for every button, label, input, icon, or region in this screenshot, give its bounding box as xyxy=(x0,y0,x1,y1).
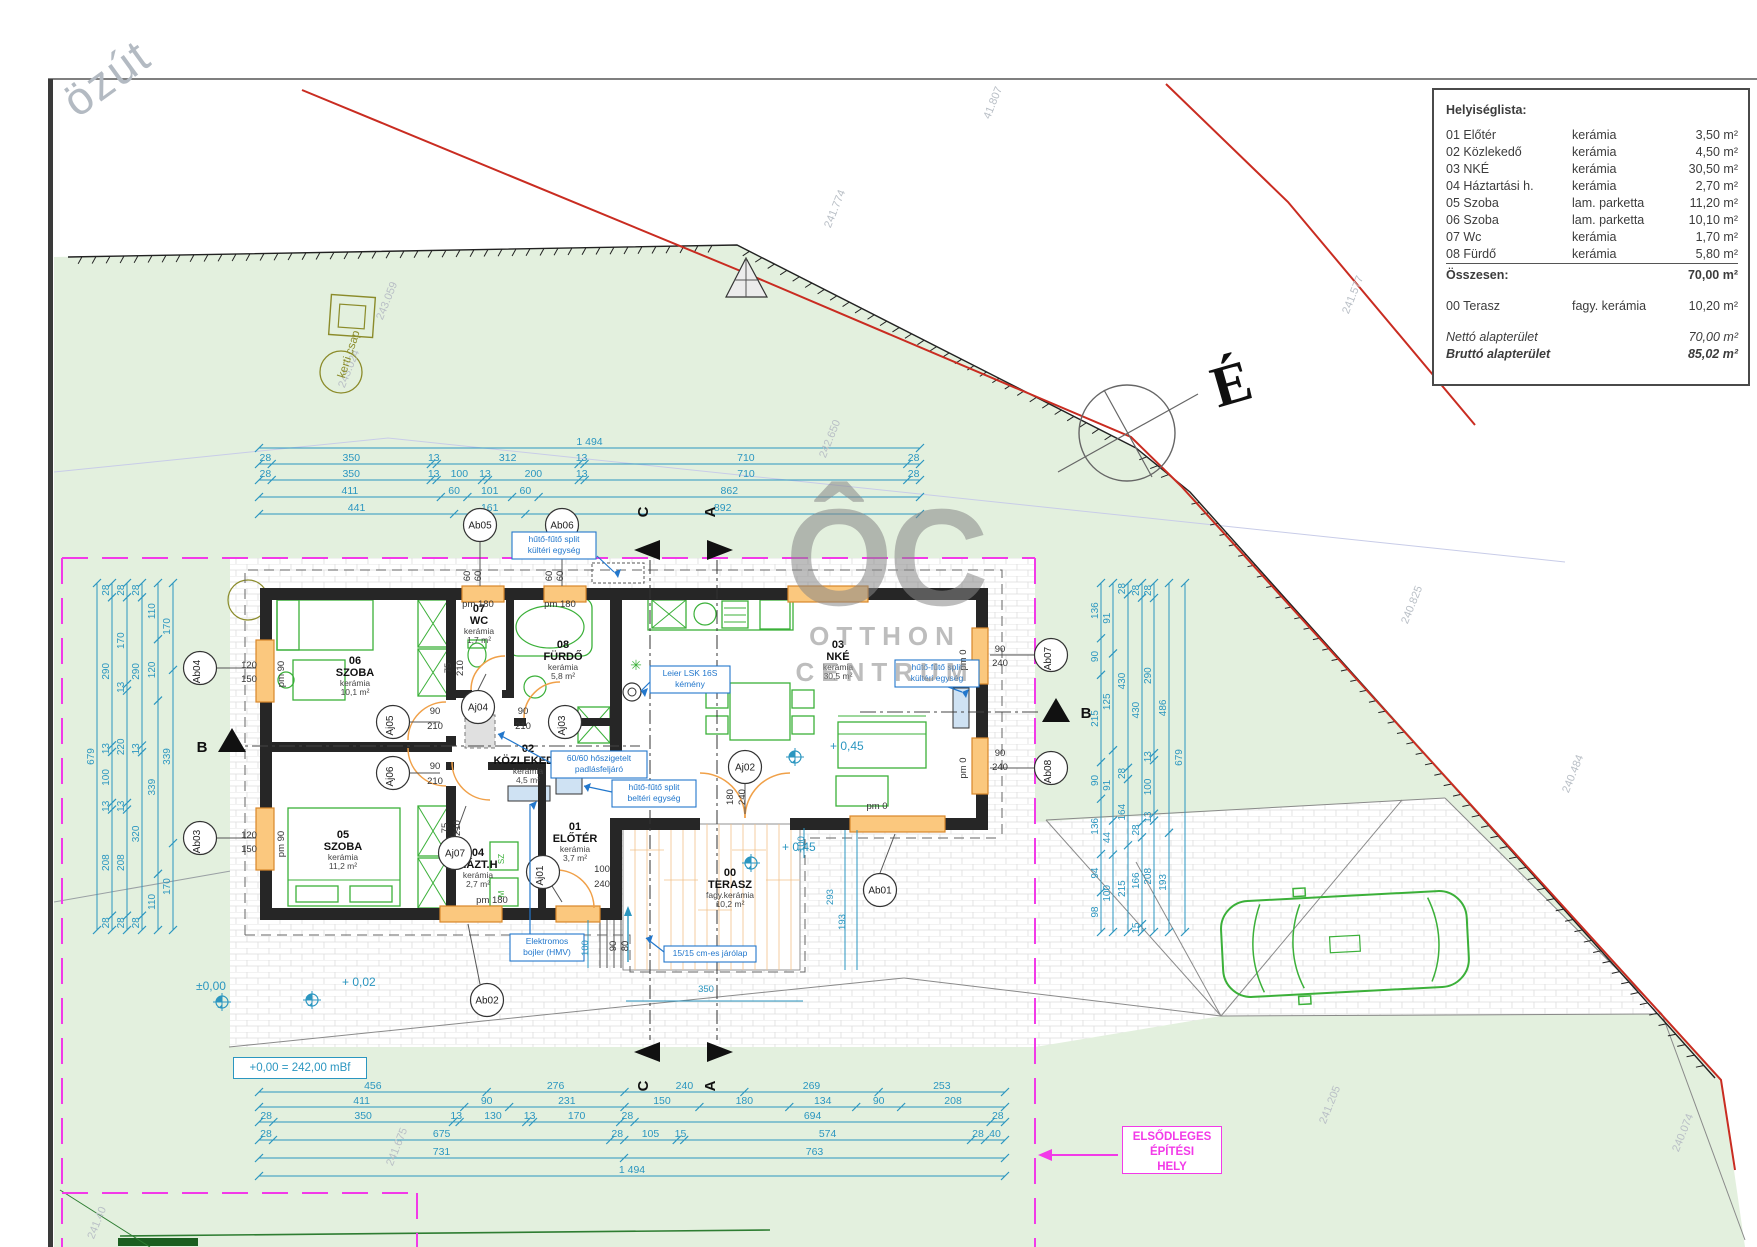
svg-text:60: 60 xyxy=(544,571,555,582)
svg-text:210: 210 xyxy=(455,660,466,676)
svg-text:+ 0,45: + 0,45 xyxy=(830,739,864,753)
svg-text:253: 253 xyxy=(933,1080,951,1092)
svg-text:90: 90 xyxy=(518,706,529,717)
room-list-row: 01 Előtérkerámia3,50 m² xyxy=(1446,127,1738,144)
svg-text:08: 08 xyxy=(557,639,569,651)
svg-text:574: 574 xyxy=(819,1128,837,1140)
total-label: Összesen: xyxy=(1446,267,1572,284)
svg-text:+ 0,02: + 0,02 xyxy=(342,975,376,989)
svg-text:170: 170 xyxy=(162,878,173,895)
total-area: 70,00 m² xyxy=(1682,267,1738,284)
svg-text:hűtő-fűtő split: hűtő-fűtő split xyxy=(528,534,580,544)
svg-text:215: 215 xyxy=(1117,880,1128,897)
svg-text:10,2 m²: 10,2 m² xyxy=(716,899,745,909)
svg-text:675: 675 xyxy=(433,1128,451,1140)
svg-text:beltéri egység: beltéri egység xyxy=(628,793,681,803)
svg-text:486: 486 xyxy=(1158,699,1169,716)
svg-text:150: 150 xyxy=(653,1095,671,1107)
svg-text:06: 06 xyxy=(349,655,361,667)
svg-text:320: 320 xyxy=(131,825,142,842)
svg-text:13: 13 xyxy=(116,800,127,812)
svg-text:C: C xyxy=(635,506,652,517)
svg-text:B: B xyxy=(197,739,208,756)
svg-text:100: 100 xyxy=(451,468,469,480)
svg-text:90: 90 xyxy=(481,1095,493,1107)
svg-text:90: 90 xyxy=(873,1095,885,1107)
svg-text:60/60 hőszigetelt: 60/60 hőszigetelt xyxy=(567,753,632,763)
svg-text:+ 0,45: + 0,45 xyxy=(782,840,816,854)
svg-text:100: 100 xyxy=(101,769,112,786)
svg-text:100: 100 xyxy=(1143,778,1154,795)
svg-text:Elektromos: Elektromos xyxy=(526,936,569,946)
svg-text:276: 276 xyxy=(547,1080,565,1092)
svg-text:312: 312 xyxy=(499,452,517,464)
svg-text:kültéri egység: kültéri egység xyxy=(911,673,964,683)
svg-text:SZ: SZ xyxy=(497,854,506,864)
svg-text:710: 710 xyxy=(737,468,755,480)
room-list-table: Helyiséglista: 01 Előtérkerámia3,50 m²02… xyxy=(1432,88,1750,386)
svg-text:60: 60 xyxy=(520,485,532,497)
svg-text:180: 180 xyxy=(736,1095,754,1107)
svg-text:94: 94 xyxy=(1090,867,1101,879)
svg-text:28: 28 xyxy=(260,1128,272,1140)
svg-text:136: 136 xyxy=(1090,602,1101,619)
svg-text:200: 200 xyxy=(525,468,543,480)
svg-text:339: 339 xyxy=(162,748,173,765)
svg-text:120: 120 xyxy=(241,660,257,671)
svg-text:241.774: 241.774 xyxy=(822,188,848,229)
svg-text:679: 679 xyxy=(1174,749,1185,766)
room-list-row: 04 Háztartási h.kerámia2,70 m² xyxy=(1446,178,1738,195)
svg-text:290: 290 xyxy=(131,663,142,680)
svg-text:90: 90 xyxy=(1090,774,1101,786)
svg-text:pm 90: pm 90 xyxy=(276,661,287,687)
svg-text:208: 208 xyxy=(116,854,127,871)
svg-text:90: 90 xyxy=(430,706,441,717)
svg-text:215: 215 xyxy=(1090,710,1101,727)
svg-text:Aj02: Aj02 xyxy=(735,763,755,774)
svg-text:101: 101 xyxy=(481,485,499,497)
svg-text:105: 105 xyxy=(642,1128,660,1140)
svg-text:130: 130 xyxy=(484,1110,502,1122)
svg-text:339: 339 xyxy=(147,778,158,795)
svg-text:28: 28 xyxy=(1131,584,1142,596)
svg-text:28: 28 xyxy=(116,584,127,596)
svg-text:28: 28 xyxy=(101,584,112,596)
svg-text:28: 28 xyxy=(1131,824,1142,836)
svg-text:120: 120 xyxy=(147,661,158,678)
svg-text:220: 220 xyxy=(116,738,127,755)
svg-text:Ab04: Ab04 xyxy=(192,659,203,683)
svg-text:A: A xyxy=(702,1080,719,1091)
svg-text:91: 91 xyxy=(1102,612,1113,624)
svg-text:Aj06: Aj06 xyxy=(385,766,396,786)
primary-build-area-label: ELSŐDLEGES ÉPÍTÉSI HELY xyxy=(1122,1126,1222,1174)
svg-text:40: 40 xyxy=(989,1128,1001,1140)
svg-text:pm 0: pm 0 xyxy=(866,801,887,812)
svg-text:Ab01: Ab01 xyxy=(868,886,892,897)
svg-text:731: 731 xyxy=(433,1146,451,1158)
svg-text:Aj04: Aj04 xyxy=(468,703,488,714)
svg-text:90: 90 xyxy=(430,761,441,772)
svg-text:100: 100 xyxy=(1102,885,1113,902)
svg-text:B: B xyxy=(1081,705,1092,722)
svg-text:44: 44 xyxy=(1102,832,1113,844)
svg-text:00: 00 xyxy=(724,867,736,879)
svg-text:98: 98 xyxy=(1090,906,1101,918)
svg-text:kémény: kémény xyxy=(675,679,706,689)
room-list-total-row: Összesen: 70,00 m² xyxy=(1446,267,1738,284)
svg-text:60: 60 xyxy=(555,571,566,582)
svg-text:13: 13 xyxy=(1143,811,1154,823)
svg-text:2,7 m²: 2,7 m² xyxy=(466,879,490,889)
svg-text:862: 862 xyxy=(721,485,739,497)
svg-text:170: 170 xyxy=(568,1110,586,1122)
terrace-row: 00 Terasz fagy. kerámia 10,20 m² xyxy=(1446,298,1738,315)
svg-text:290: 290 xyxy=(101,663,112,680)
room-list-rows: 01 Előtérkerámia3,50 m²02 Közlekedőkerám… xyxy=(1446,127,1738,264)
svg-text:441: 441 xyxy=(348,502,366,514)
svg-text:28: 28 xyxy=(131,584,142,596)
svg-text:15: 15 xyxy=(675,1128,687,1140)
svg-text:15: 15 xyxy=(1131,922,1142,934)
level-reference: +0,00 = 242,00 mBf xyxy=(233,1057,367,1079)
svg-text:269: 269 xyxy=(803,1080,821,1092)
room-list-title: Helyiséglista: xyxy=(1446,102,1738,119)
svg-text:pm 0: pm 0 xyxy=(958,757,969,778)
svg-text:210: 210 xyxy=(427,721,443,732)
svg-text:180: 180 xyxy=(725,789,736,805)
svg-text:350: 350 xyxy=(343,452,361,464)
svg-text:210: 210 xyxy=(515,721,531,732)
svg-text:bojler (HMV): bojler (HMV) xyxy=(523,947,571,957)
svg-text:411: 411 xyxy=(353,1095,370,1107)
svg-text:208: 208 xyxy=(1143,868,1154,885)
svg-text:pm 180: pm 180 xyxy=(462,599,494,610)
room-list-row: 02 Közlekedőkerámia4,50 m² xyxy=(1446,144,1738,161)
svg-text:90: 90 xyxy=(995,748,1006,759)
svg-text:170: 170 xyxy=(162,618,173,635)
svg-text:208: 208 xyxy=(101,854,112,871)
svg-text:240.484: 240.484 xyxy=(1560,753,1586,794)
svg-text:710: 710 xyxy=(737,452,755,464)
svg-text:75: 75 xyxy=(440,823,451,834)
svg-text:120: 120 xyxy=(241,830,257,841)
svg-text:90: 90 xyxy=(1090,651,1101,663)
svg-text:90: 90 xyxy=(995,644,1006,655)
svg-text:5,8 m²: 5,8 m² xyxy=(551,671,575,681)
svg-text:15/15 cm-es járólap: 15/15 cm-es járólap xyxy=(673,948,748,958)
svg-text:13: 13 xyxy=(101,743,112,755)
svg-text:05: 05 xyxy=(337,829,349,841)
svg-text:100: 100 xyxy=(580,940,591,956)
svg-text:240: 240 xyxy=(992,658,1008,669)
svg-text:134: 134 xyxy=(814,1095,832,1107)
svg-text:28: 28 xyxy=(131,917,142,929)
svg-text:11,2 m²: 11,2 m² xyxy=(329,861,357,871)
svg-text:3,7 m²: 3,7 m² xyxy=(563,853,587,863)
svg-text:28: 28 xyxy=(972,1128,984,1140)
room-list-row: 06 Szobalam. parketta10,10 m² xyxy=(1446,212,1738,229)
svg-text:290: 290 xyxy=(1143,667,1154,684)
svg-text:240: 240 xyxy=(737,789,748,805)
svg-text:03: 03 xyxy=(832,639,844,651)
svg-text:240.825: 240.825 xyxy=(1399,584,1425,625)
svg-text:13: 13 xyxy=(524,1110,536,1122)
svg-text:170: 170 xyxy=(116,632,127,649)
svg-text:kültéri egység: kültéri egység xyxy=(528,545,581,555)
svg-text:350: 350 xyxy=(342,468,360,480)
site-plan-sheet: { "site": { "road_label": "özút", "north… xyxy=(0,0,1757,1247)
svg-text:13: 13 xyxy=(116,681,127,693)
svg-text:456: 456 xyxy=(364,1080,382,1092)
svg-text:01: 01 xyxy=(569,821,581,833)
svg-text:430: 430 xyxy=(1131,701,1142,718)
net-area-row: Nettó alapterület 70,00 m² xyxy=(1446,329,1738,346)
svg-text:110: 110 xyxy=(147,603,158,619)
svg-text:pm 180: pm 180 xyxy=(544,599,576,610)
svg-text:210: 210 xyxy=(452,820,463,836)
svg-text:166: 166 xyxy=(1131,872,1142,889)
room-list-row: 05 Szobalam. parketta11,20 m² xyxy=(1446,195,1738,212)
svg-text:1,7 m²: 1,7 m² xyxy=(467,635,491,645)
svg-text:150: 150 xyxy=(241,844,257,855)
note: Leier LSK 16Skémény xyxy=(641,666,730,697)
svg-text:110: 110 xyxy=(147,893,158,909)
svg-text:90: 90 xyxy=(608,941,619,952)
svg-text:150: 150 xyxy=(241,674,257,685)
svg-text:208: 208 xyxy=(944,1095,962,1107)
room-list-row: 07 Wckerámia1,70 m² xyxy=(1446,229,1738,246)
svg-text:C: C xyxy=(635,1080,652,1091)
svg-text:75: 75 xyxy=(443,663,454,674)
svg-text:136: 136 xyxy=(1090,818,1101,835)
door-window-tag: Aj03 xyxy=(549,706,582,739)
svg-text:13: 13 xyxy=(101,800,112,812)
room-list-row: 08 Fürdőkerámia5,80 m² xyxy=(1446,246,1738,264)
svg-text:350: 350 xyxy=(698,984,714,995)
svg-text:padlásfeljáró: padlásfeljáró xyxy=(575,764,623,774)
svg-text:Aj01: Aj01 xyxy=(535,865,546,885)
svg-text:10,1 m²: 10,1 m² xyxy=(341,687,370,697)
svg-text:13: 13 xyxy=(131,743,142,755)
gross-area-row: Bruttó alapterület 85,02 m² xyxy=(1446,346,1738,363)
svg-text:41.807: 41.807 xyxy=(981,85,1005,121)
svg-text:240: 240 xyxy=(676,1080,694,1092)
svg-text:13: 13 xyxy=(450,1110,462,1122)
svg-text:28: 28 xyxy=(992,1110,1004,1122)
svg-text:60: 60 xyxy=(473,571,484,582)
svg-text:60: 60 xyxy=(448,485,460,497)
room-list-row: 03 NKÉkerámia30,50 m² xyxy=(1446,161,1738,178)
svg-text:60: 60 xyxy=(462,571,473,582)
svg-text:30,5 m²: 30,5 m² xyxy=(824,671,853,681)
svg-text:13: 13 xyxy=(1143,751,1154,763)
svg-text:hűtő-fűtő split: hűtő-fűtő split xyxy=(911,662,963,672)
svg-text:231: 231 xyxy=(558,1095,576,1107)
svg-text:240: 240 xyxy=(594,879,610,890)
svg-text:Ab02: Ab02 xyxy=(475,996,499,1007)
svg-text:763: 763 xyxy=(806,1146,824,1158)
svg-text:28: 28 xyxy=(260,1110,272,1122)
svg-text:100: 100 xyxy=(594,864,610,875)
svg-text:Aj07: Aj07 xyxy=(445,849,465,860)
svg-text:4,5 m²: 4,5 m² xyxy=(516,775,540,785)
svg-text:80: 80 xyxy=(620,941,631,952)
svg-text:240: 240 xyxy=(992,762,1008,773)
svg-text:193: 193 xyxy=(837,914,848,930)
svg-text:28: 28 xyxy=(611,1128,623,1140)
svg-text:1 494: 1 494 xyxy=(619,1164,645,1176)
svg-text:Ab06: Ab06 xyxy=(550,521,574,532)
svg-text:694: 694 xyxy=(804,1110,822,1122)
svg-text:1 494: 1 494 xyxy=(576,436,602,448)
svg-text:679: 679 xyxy=(86,748,97,765)
svg-text:Aj03: Aj03 xyxy=(557,715,568,735)
svg-text:430: 430 xyxy=(1117,672,1128,689)
svg-text:125: 125 xyxy=(1102,693,1113,710)
svg-text:28: 28 xyxy=(622,1110,634,1122)
svg-text:210: 210 xyxy=(427,776,443,787)
svg-text:pm 180: pm 180 xyxy=(476,895,508,906)
svg-text:28: 28 xyxy=(101,917,112,929)
svg-text:91: 91 xyxy=(1102,779,1113,791)
svg-text:±0,00: ±0,00 xyxy=(196,979,226,993)
svg-text:Ab03: Ab03 xyxy=(192,829,203,853)
svg-text:241.577: 241.577 xyxy=(1340,274,1366,315)
svg-text:350: 350 xyxy=(354,1110,372,1122)
svg-text:193: 193 xyxy=(1158,874,1169,891)
svg-text:pm 90: pm 90 xyxy=(276,831,287,857)
svg-text:Ab07: Ab07 xyxy=(1043,646,1054,670)
svg-text:hűtő-fűtő split: hűtő-fűtő split xyxy=(628,782,680,792)
svg-text:Aj05: Aj05 xyxy=(385,715,396,735)
svg-text:Ab05: Ab05 xyxy=(468,521,492,532)
svg-text:pm 0: pm 0 xyxy=(958,649,969,670)
svg-text:✳: ✳ xyxy=(630,657,642,673)
svg-text:164: 164 xyxy=(1117,803,1128,820)
svg-text:28: 28 xyxy=(116,917,127,929)
svg-text:04: 04 xyxy=(472,847,485,859)
svg-text:Ab08: Ab08 xyxy=(1043,759,1054,783)
svg-text:A: A xyxy=(702,506,719,517)
svg-text:411: 411 xyxy=(342,485,359,497)
svg-text:293: 293 xyxy=(825,889,836,905)
svg-text:Leier LSK 16S: Leier LSK 16S xyxy=(663,668,718,678)
